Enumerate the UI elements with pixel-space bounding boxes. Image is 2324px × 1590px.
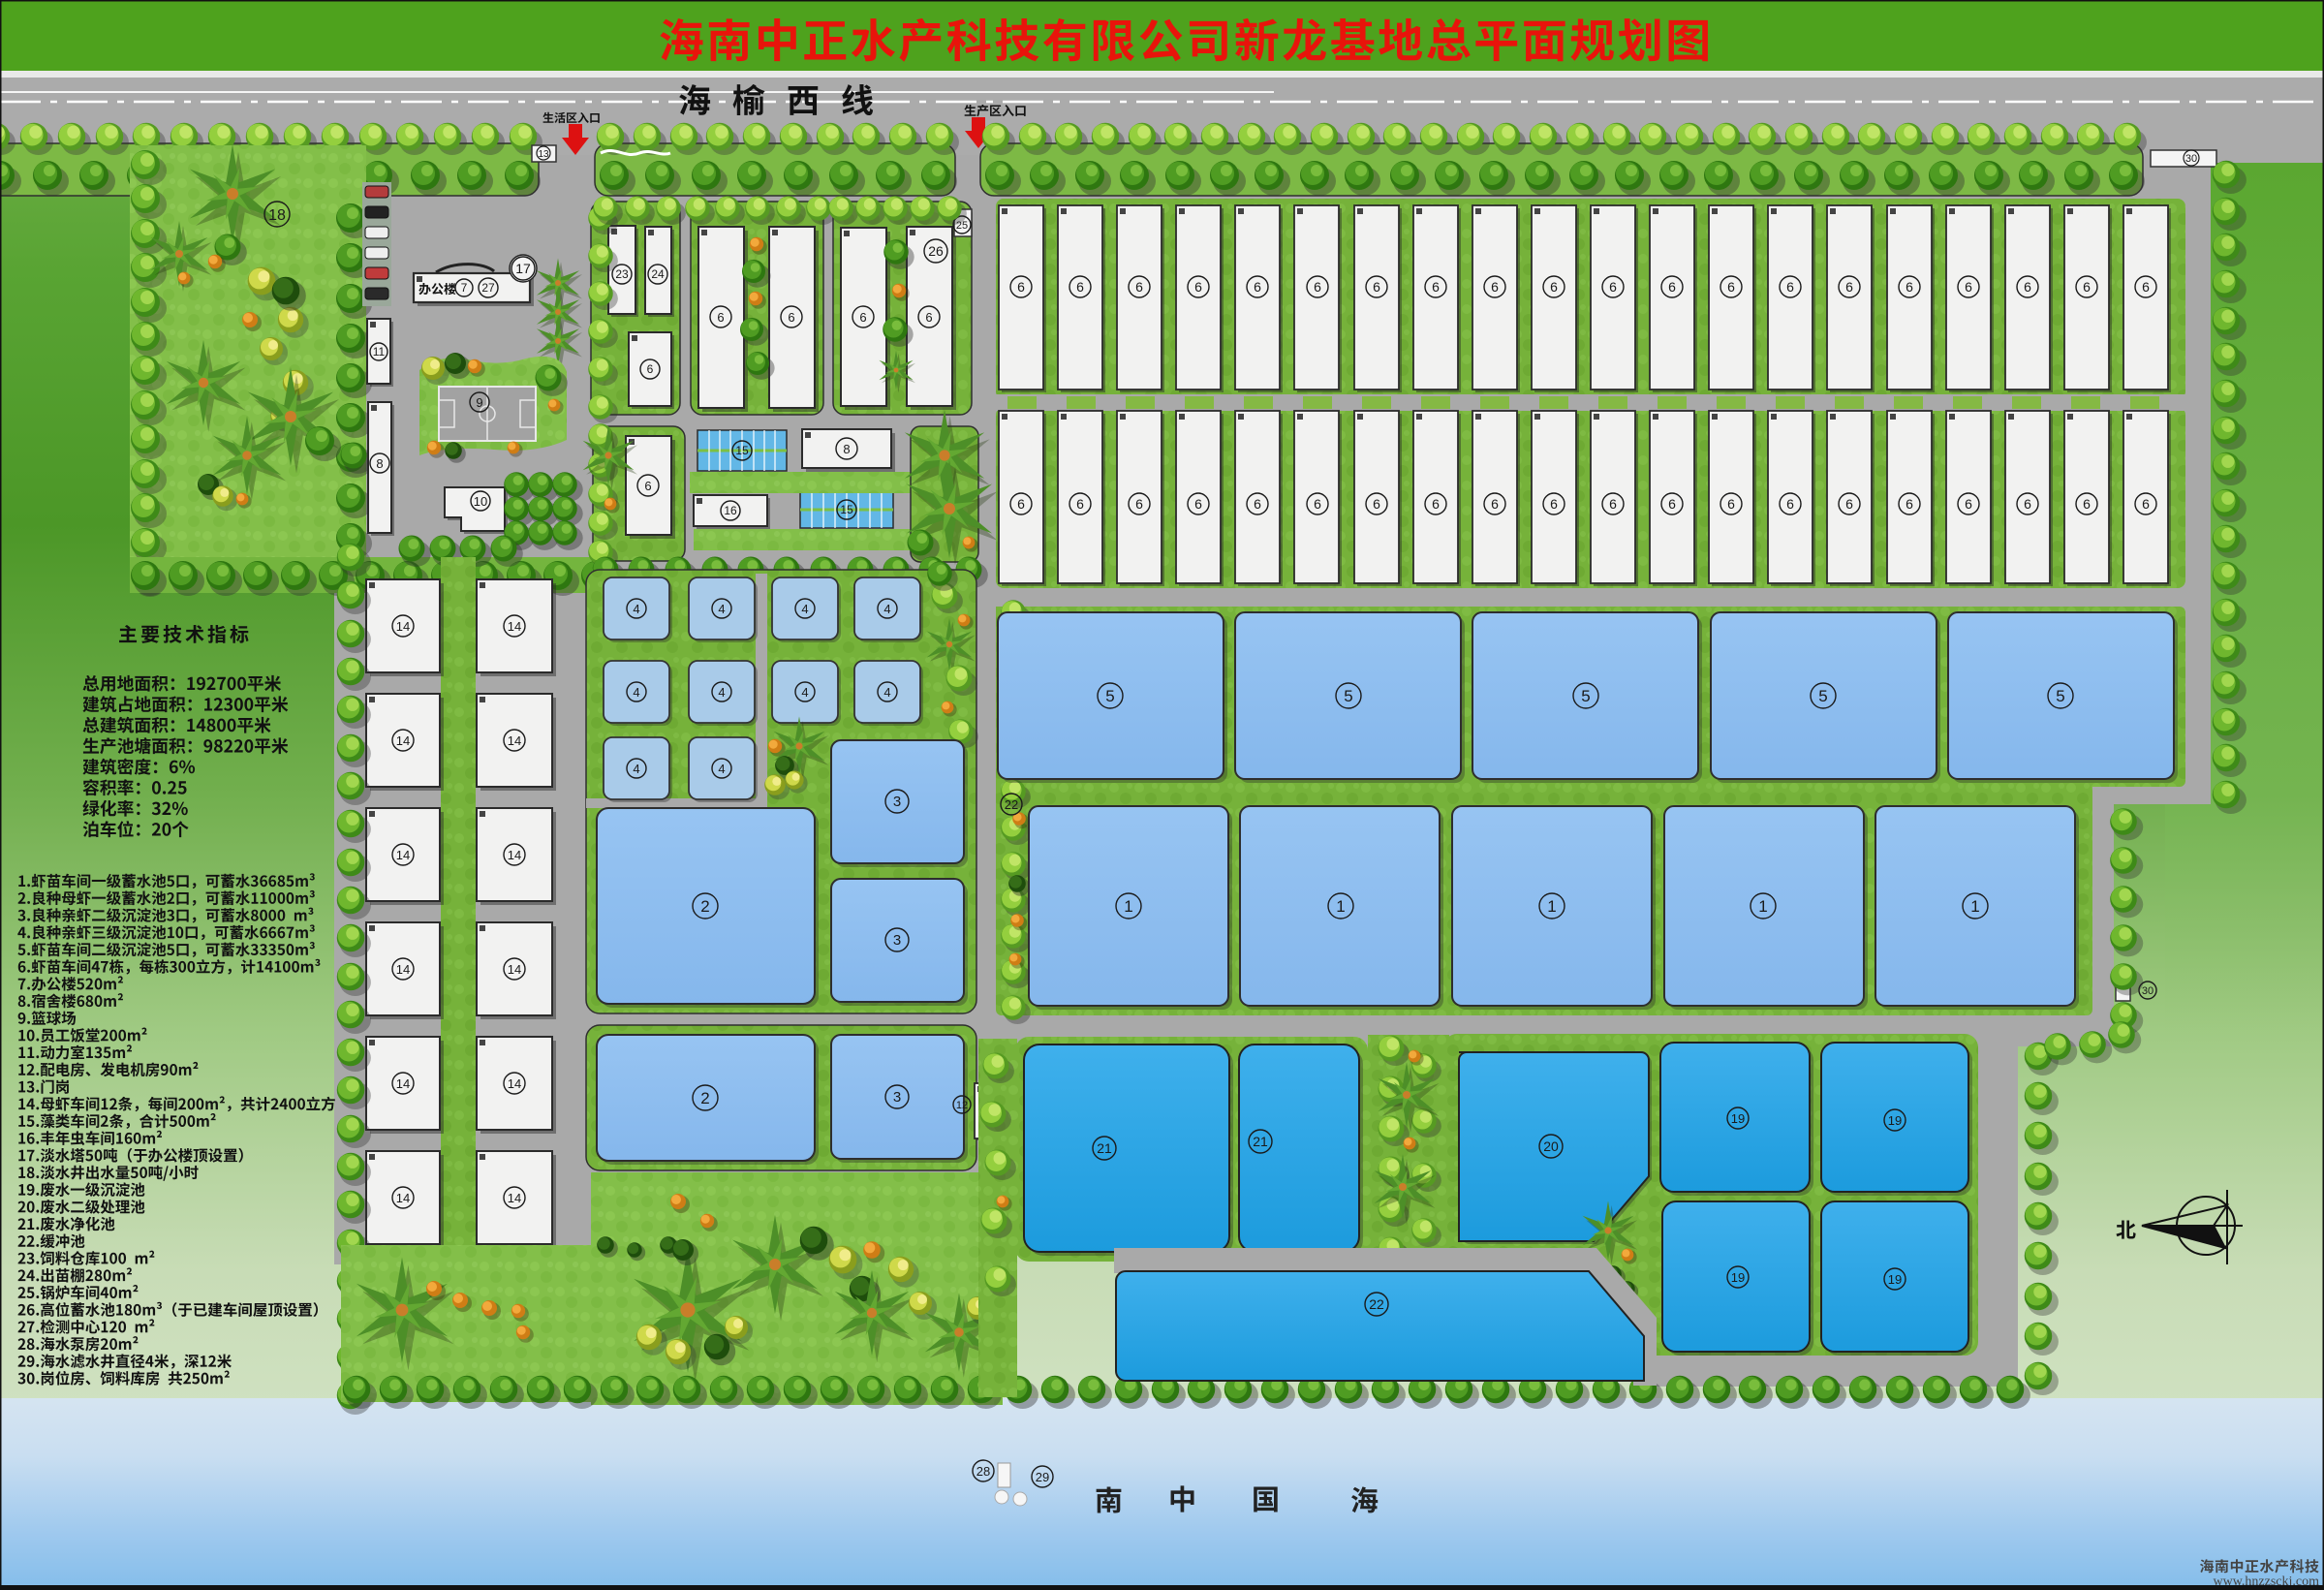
svg-text:6: 6 [859,310,866,325]
svg-text:4: 4 [883,602,890,616]
svg-text:6: 6 [1254,279,1261,295]
svg-text:6: 6 [1017,279,1025,295]
svg-text:30: 30 [2142,985,2154,997]
svg-text:8: 8 [376,456,383,471]
svg-text:6: 6 [2024,496,2031,512]
svg-text:3: 3 [893,1089,901,1106]
svg-text:11: 11 [373,345,386,359]
svg-text:21: 21 [1253,1134,1268,1149]
svg-text:20: 20 [1543,1138,1559,1154]
svg-text:6: 6 [925,310,932,325]
svg-text:6: 6 [1668,496,1676,512]
svg-text:4: 4 [883,685,890,700]
svg-text:6: 6 [1906,496,1913,512]
svg-text:7: 7 [461,281,468,295]
svg-text:6: 6 [1491,279,1499,295]
svg-text:1: 1 [1758,897,1767,916]
svg-text:14: 14 [396,848,410,862]
svg-text:18: 18 [268,207,286,224]
svg-text:19: 19 [1731,1270,1745,1285]
svg-text:6: 6 [1965,496,1972,512]
svg-text:14: 14 [396,1076,410,1091]
svg-text:6: 6 [647,362,654,376]
svg-text:19: 19 [1888,1272,1902,1287]
svg-text:1: 1 [1336,897,1345,916]
svg-text:14: 14 [508,848,521,862]
svg-text:14: 14 [508,1076,521,1091]
svg-text:22: 22 [1005,797,1018,812]
svg-text:6: 6 [1314,496,1321,512]
svg-text:1: 1 [1970,897,1979,916]
svg-text:4: 4 [801,685,808,700]
svg-text:15: 15 [840,503,853,516]
svg-text:6: 6 [1609,496,1617,512]
svg-text:4: 4 [633,762,639,776]
svg-text:5: 5 [1818,687,1827,705]
svg-text:6: 6 [1550,279,1558,295]
svg-text:19: 19 [1731,1111,1745,1126]
svg-text:14: 14 [396,733,410,748]
svg-text:6: 6 [2142,496,2150,512]
svg-text:1: 1 [1124,897,1132,916]
svg-text:6: 6 [1135,496,1143,512]
svg-text:13: 13 [538,149,549,160]
svg-text:4: 4 [633,602,639,616]
svg-text:28: 28 [976,1464,990,1479]
svg-text:6: 6 [1727,496,1735,512]
svg-text:14: 14 [396,1191,410,1205]
svg-text:6: 6 [1314,279,1321,295]
svg-text:4: 4 [633,685,639,700]
svg-text:10: 10 [474,494,487,509]
svg-text:6: 6 [1194,279,1202,295]
svg-text:6: 6 [1373,279,1380,295]
svg-text:6: 6 [1076,496,1084,512]
svg-text:2: 2 [700,1089,709,1107]
svg-text:6: 6 [1845,496,1853,512]
svg-text:21: 21 [1097,1140,1112,1156]
svg-text:30: 30 [2185,153,2197,165]
svg-text:14: 14 [508,733,521,748]
svg-text:6: 6 [717,310,724,325]
svg-text:22: 22 [1369,1296,1384,1312]
svg-text:6: 6 [1609,279,1617,295]
svg-text:4: 4 [718,685,725,700]
svg-text:6: 6 [1786,496,1794,512]
svg-text:6: 6 [1194,496,1202,512]
svg-text:3: 3 [893,932,901,949]
svg-text:6: 6 [1432,496,1440,512]
svg-text:24: 24 [651,267,665,281]
svg-text:29: 29 [1036,1470,1049,1484]
svg-text:6: 6 [1965,279,1972,295]
svg-text:15: 15 [735,444,749,457]
svg-text:6: 6 [1017,496,1025,512]
svg-text:5: 5 [1581,687,1590,705]
svg-text:12: 12 [956,1100,968,1111]
svg-text:6: 6 [1668,279,1676,295]
svg-text:8: 8 [843,442,850,456]
svg-text:5: 5 [2056,687,2064,705]
svg-text:6: 6 [644,479,651,493]
svg-text:4: 4 [718,762,725,776]
svg-text:16: 16 [724,504,737,517]
svg-text:26: 26 [928,243,944,259]
svg-text:4: 4 [718,602,725,616]
svg-text:5: 5 [1344,687,1352,705]
svg-text:6: 6 [788,310,794,325]
svg-text:19: 19 [1888,1113,1902,1128]
svg-text:14: 14 [508,1191,521,1205]
svg-text:9: 9 [476,395,482,410]
svg-text:14: 14 [396,962,410,977]
svg-text:6: 6 [1432,279,1440,295]
svg-text:6: 6 [2024,279,2031,295]
svg-text:6: 6 [1906,279,1913,295]
svg-text:6: 6 [2083,279,2091,295]
svg-text:2: 2 [700,897,709,916]
svg-text:3: 3 [893,794,901,810]
svg-text:23: 23 [615,267,629,281]
svg-text:6: 6 [2142,279,2150,295]
svg-text:6: 6 [1727,279,1735,295]
svg-text:14: 14 [508,962,521,977]
svg-text:6: 6 [1373,496,1380,512]
svg-text:1: 1 [1547,897,1556,916]
svg-text:6: 6 [1135,279,1143,295]
svg-text:4: 4 [801,602,808,616]
svg-text:6: 6 [1254,496,1261,512]
svg-text:6: 6 [1076,279,1084,295]
svg-text:6: 6 [1550,496,1558,512]
svg-text:14: 14 [508,619,521,634]
svg-text:6: 6 [1491,496,1499,512]
svg-text:6: 6 [2083,496,2091,512]
svg-text:17: 17 [515,261,531,276]
svg-text:6: 6 [1786,279,1794,295]
svg-text:6: 6 [1845,279,1853,295]
svg-text:27: 27 [481,281,495,295]
svg-text:14: 14 [396,619,410,634]
svg-text:5: 5 [1105,687,1114,705]
